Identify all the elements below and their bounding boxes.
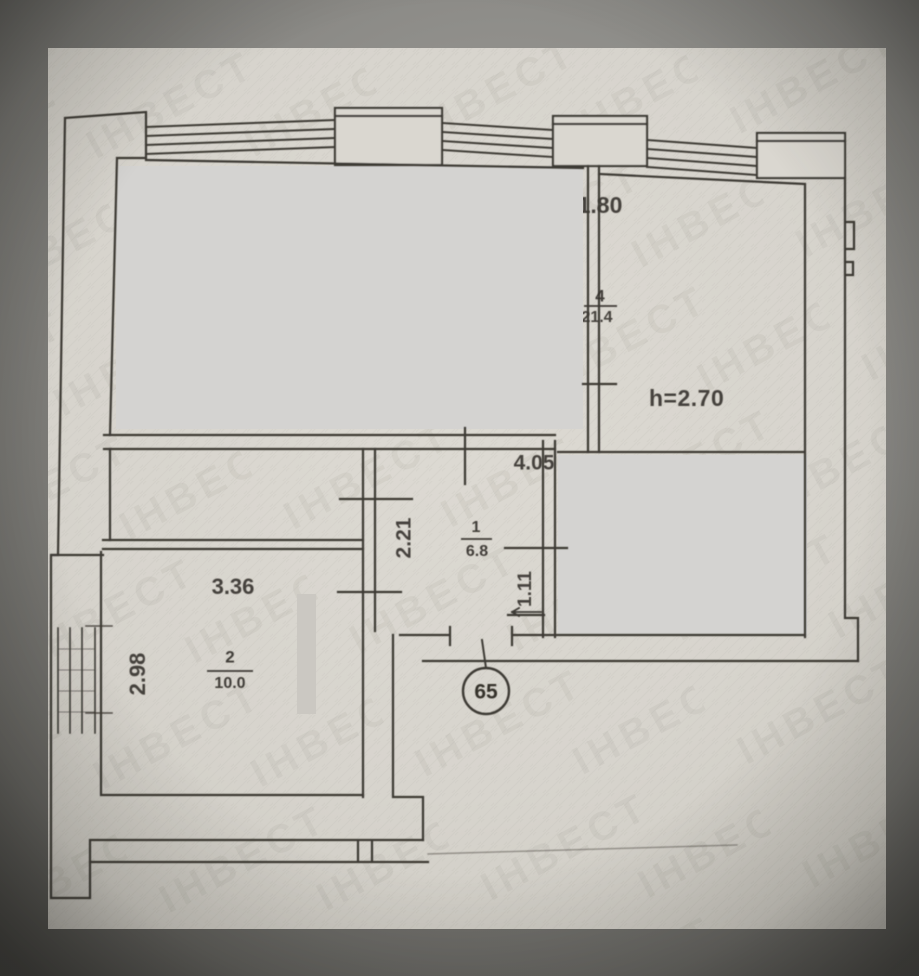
photo-vignette [0, 0, 919, 976]
floor-plan-photo: ІНВЕСТ ІНВЕСТ 1.80 21.4 [0, 0, 919, 976]
floor-plan-canvas: ІНВЕСТ ІНВЕСТ 1.80 21.4 [0, 0, 919, 976]
